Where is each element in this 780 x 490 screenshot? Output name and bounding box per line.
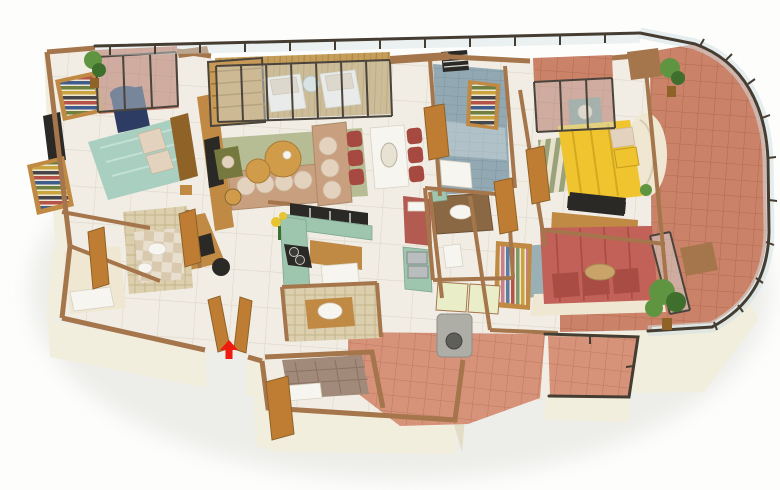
bedroom2-balcony-glass-doors: [534, 78, 615, 132]
tan-bolster-pillow: [585, 264, 615, 280]
plant-pot: [90, 78, 99, 88]
sink-basin: [407, 252, 427, 264]
dining-chair: [347, 149, 364, 166]
flower: [271, 217, 281, 227]
red-pillow: [612, 268, 640, 294]
yellow-bed-pillow: [610, 127, 635, 148]
olive-chair-pillow: [222, 156, 234, 168]
dining-chair: [407, 146, 424, 163]
flower: [279, 212, 287, 220]
dining-chair: [408, 165, 425, 182]
wall-face-utility-balcony: [544, 398, 630, 422]
master-balcony-glass-doors: [96, 52, 178, 112]
small-plant-bedroom2: [640, 184, 652, 196]
dining-chair: [348, 168, 365, 185]
yellow-bed-pillow2: [614, 147, 639, 168]
coffee-table-item: [283, 151, 291, 159]
room-dining: [346, 125, 425, 189]
room-bathroom-small: [282, 282, 380, 342]
utility-balcony-floor: [548, 336, 637, 396]
plant-pot: [667, 86, 676, 97]
sofa-cushion: [319, 137, 337, 155]
desk-chair: [212, 258, 230, 276]
plant-foliage: [645, 299, 663, 317]
glass-pane: [96, 52, 178, 112]
walkin-wardrobe-clothes: [470, 84, 496, 126]
dining-centerpiece: [381, 143, 397, 167]
plant-foliage: [92, 63, 106, 77]
plant-pot: [662, 318, 672, 330]
cap-block-1: [627, 48, 662, 80]
floorplan-render: [0, 0, 780, 490]
plant-foliage: [666, 292, 686, 312]
fridge-top: [408, 202, 425, 211]
floorplan-svg: [0, 0, 780, 490]
glass-pane: [534, 78, 615, 132]
master-side-table: [180, 185, 192, 195]
red-pillow: [552, 272, 580, 298]
pan: [296, 256, 305, 265]
dining-chair: [406, 127, 423, 144]
toilet: [443, 244, 463, 268]
deck-folding-glass-doors: [216, 60, 392, 122]
side-table: [225, 189, 241, 205]
coffee-table-small: [246, 159, 270, 183]
toilet-mosaic: [148, 243, 166, 255]
plant-foliage: [671, 71, 685, 85]
sink-basin: [408, 266, 428, 278]
sofa-cushion: [321, 159, 339, 177]
flower-stem: [278, 226, 281, 240]
small-bath-basin: [318, 303, 342, 319]
cap-block-2: [680, 242, 718, 276]
pan: [290, 248, 299, 257]
vanity-basin: [450, 205, 472, 219]
sofa-cushion: [323, 181, 341, 199]
washer-door: [446, 333, 462, 349]
sofa-cushion: [294, 171, 312, 189]
corridor-door: [424, 104, 449, 160]
dining-chair: [346, 130, 363, 147]
room-servant: [282, 355, 369, 401]
shower-tray: [440, 160, 472, 188]
